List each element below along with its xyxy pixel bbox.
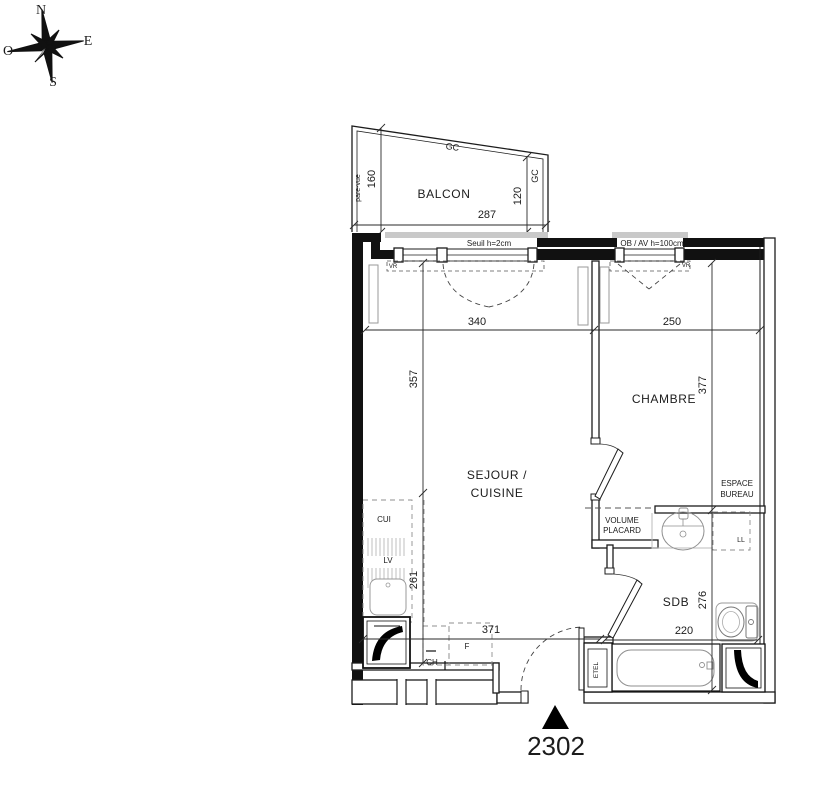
door-entrance-swing — [521, 627, 584, 690]
door-bedroom-leaf — [595, 449, 623, 499]
entrance-marker-triangle — [542, 705, 569, 729]
compass-label-south: S — [49, 75, 57, 90]
floor-plan-drawing: N E S O BALCON pare-vue GC GC 160 120 28… — [0, 0, 838, 800]
french-door-swing-left — [443, 264, 489, 307]
dishwasher-label: LV — [383, 556, 393, 565]
closet-label-line1: VOLUME — [605, 516, 639, 525]
window-living — [387, 248, 544, 307]
tilt-window-swing — [618, 264, 680, 289]
room-label-living-line2: CUISINE — [471, 486, 524, 500]
vr-right-label: VR — [682, 263, 691, 269]
door-bathroom-swing — [612, 574, 640, 582]
washing-machine-zone — [713, 512, 750, 550]
washbasin — [652, 508, 713, 550]
washing-machine-label: LL — [737, 537, 745, 544]
closet-label-line2: PLACARD — [603, 526, 641, 535]
wall-partition-upper — [592, 261, 599, 443]
bathtub-basin — [617, 650, 714, 686]
dim-living-width: 340 — [468, 316, 486, 328]
wall-left — [352, 233, 363, 705]
dim-living-height-upper: 357 — [408, 370, 420, 388]
door-bathroom-leaf — [608, 580, 642, 638]
door-entrance-leaf — [579, 628, 584, 690]
threshold-note: Seuil h=2cm — [467, 239, 512, 248]
compass-label-east: E — [84, 34, 93, 49]
french-door-swing-right — [489, 264, 534, 307]
floor-plan-page: N E S O BALCON pare-vue GC GC 160 120 28… — [0, 0, 838, 800]
unit-number: 2302 — [527, 731, 585, 761]
balcony-dim-120: 120 — [512, 187, 524, 205]
balcony-dim-287: 287 — [478, 209, 496, 221]
door-entrance — [521, 627, 584, 703]
balcony-label: BALCON — [418, 187, 471, 201]
window-sill-bedroom — [612, 232, 688, 238]
door-bedroom — [591, 438, 623, 500]
toilet-tank — [746, 606, 757, 638]
balcony-gc-top-label: GC — [445, 141, 460, 153]
door-bedroom-swing — [598, 444, 620, 451]
wall-hall-step — [493, 663, 499, 693]
window-sill-living — [385, 232, 548, 238]
vr-left-label: VR — [389, 264, 398, 270]
radiator-bedroom — [600, 267, 609, 323]
desk-area-label-line1: ESPACE — [721, 479, 753, 488]
wall-right — [764, 238, 775, 703]
window-bedroom — [610, 248, 690, 289]
boiler-label: CH — [426, 658, 438, 667]
bathtub — [612, 644, 720, 691]
duct-shaft-southeast — [722, 644, 765, 692]
fridge-label: F — [465, 642, 470, 651]
duct-shaft-southwest — [363, 617, 410, 668]
compass-label-west: O — [3, 44, 13, 59]
room-label-bathroom: SDB — [663, 595, 689, 609]
compass-label-north: N — [36, 3, 46, 18]
dim-bathroom-width: 220 — [675, 625, 693, 637]
dim-bedroom-width: 250 — [663, 316, 681, 328]
desk-area-label-line2: BUREAU — [720, 490, 754, 499]
radiators — [369, 265, 609, 325]
kitchen-label: CUI — [377, 515, 391, 524]
wall-top-left-b — [371, 233, 380, 259]
wall-closet-bottom — [592, 540, 658, 548]
wall-pier-center-b — [537, 249, 617, 260]
room-label-living-line1: SEJOUR / — [467, 468, 527, 482]
dim-hall-width: 371 — [482, 624, 500, 636]
dim-bedroom-height: 377 — [697, 376, 709, 394]
kitchen-area — [363, 500, 424, 622]
window-height-note: OB / AV h=100cm — [620, 239, 684, 248]
solid-walls — [352, 233, 764, 705]
dim-bathroom-height: 276 — [697, 591, 709, 609]
radiator-living-left — [369, 265, 378, 323]
wall-bottom-right — [584, 692, 775, 703]
dimension-lines — [359, 259, 764, 694]
room-label-bedroom: CHAMBRE — [632, 392, 696, 406]
roller-shutter-box-living — [387, 261, 544, 271]
balcony-privacy-screen-label: pare-vue — [355, 174, 362, 202]
radiator-living-window — [578, 267, 588, 325]
toilet — [716, 603, 758, 641]
technical-closet-label: ETEL — [593, 661, 600, 678]
balcony-dim-160: 160 — [366, 170, 378, 188]
wall-pier-center-a — [537, 238, 617, 247]
dim-living-height-lower: 261 — [408, 571, 420, 589]
kitchen-sink — [370, 579, 406, 615]
balcony-gc-right-label: GC — [530, 169, 540, 183]
door-bathroom — [605, 568, 642, 638]
bathtub-tap — [700, 663, 705, 668]
wall-pier-right-a — [683, 238, 764, 247]
compass-rose: N E S O — [2, 3, 92, 90]
wall-pier-right-b — [683, 249, 764, 260]
wall-bottom-left — [352, 680, 497, 704]
